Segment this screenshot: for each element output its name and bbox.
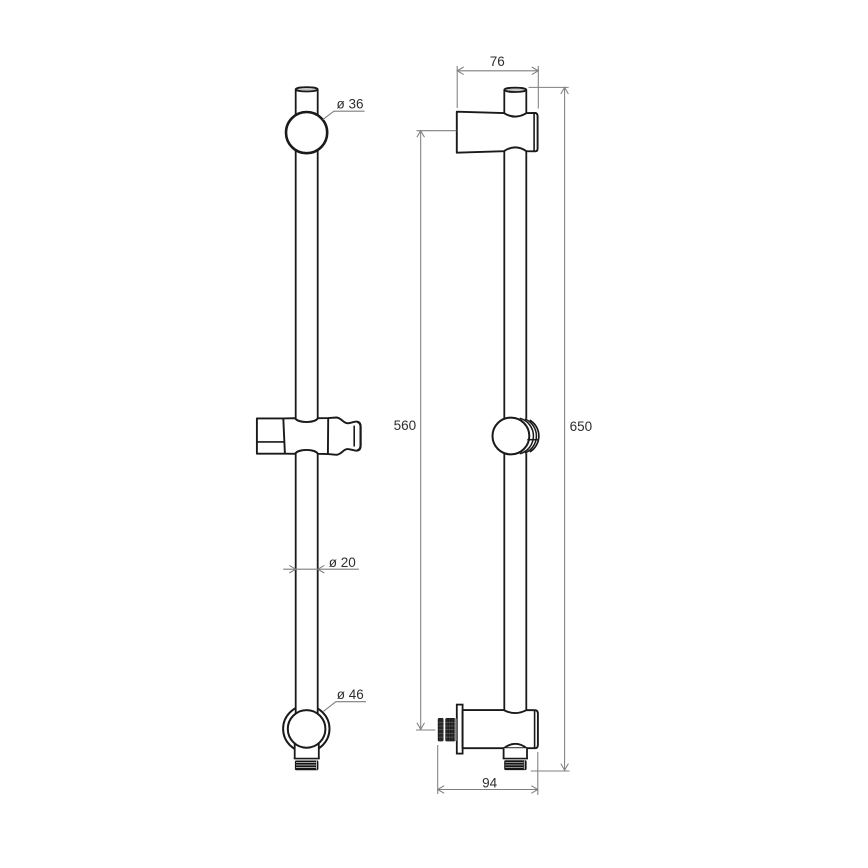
svg-text:94: 94 (482, 775, 498, 790)
svg-text:ø 46: ø 46 (337, 687, 364, 702)
svg-text:650: 650 (570, 419, 593, 434)
svg-text:ø 36: ø 36 (337, 97, 364, 112)
svg-text:560: 560 (394, 418, 417, 433)
svg-text:76: 76 (490, 54, 505, 69)
svg-text:ø 20: ø 20 (329, 555, 356, 570)
